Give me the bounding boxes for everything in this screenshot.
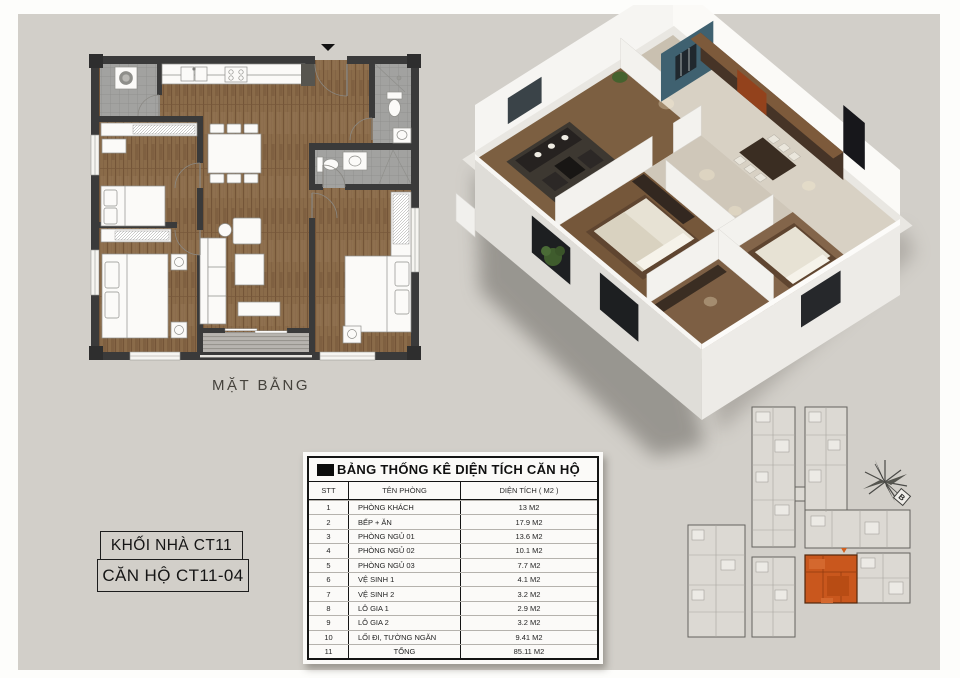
row-stt: 5 [309, 559, 349, 572]
tv-cabinet [238, 302, 280, 316]
table-row: 3 PHÒNG NGỦ 01 13.6 M2 [309, 529, 597, 543]
table-row: 7 VỆ SINH 2 3.2 M2 [309, 586, 597, 600]
row-stt: 2 [309, 515, 349, 528]
dining-table [208, 134, 261, 173]
table-row: 11 TỔNG 85.11 M2 [309, 644, 597, 658]
table-row: 4 PHÒNG NGỦ 02 10.1 M2 [309, 543, 597, 557]
row-stt: 1 [309, 501, 349, 514]
stove-icon [225, 67, 247, 82]
table-body: 1 PHÒNG KHÁCH 13 M2 2 BẾP + ĂN 17.9 M2 3… [309, 500, 597, 658]
row-area-value: 10.1 M2 [461, 544, 597, 557]
coffee-table [235, 254, 264, 285]
row-room-name: TỔNG [349, 645, 461, 658]
row-area-value: 13 M2 [461, 501, 597, 514]
toilet-icon [387, 92, 402, 99]
row-area-value: 85.11 M2 [461, 645, 597, 658]
sink-icon [181, 67, 194, 81]
row-stt: 3 [309, 530, 349, 543]
row-stt: 4 [309, 544, 349, 557]
highlighted-unit [805, 548, 857, 603]
table-title-row: BẢNG THỐNG KÊ DIỆN TÍCH CĂN HỘ [309, 458, 597, 482]
floor-plan-caption: MẶT BẰNG [181, 377, 341, 397]
row-stt: 11 [309, 645, 349, 658]
row-area-value: 7.7 M2 [461, 559, 597, 572]
row-room-name: PHÒNG NGỦ 02 [349, 544, 461, 557]
row-area-value: 17.9 M2 [461, 515, 597, 528]
table-header-row: STT TÊN PHÒNG DIỆN TÍCH ( M2 ) [309, 482, 597, 500]
table-row: 10 LỐI ĐI, TƯỜNG NGĂN 9.41 M2 [309, 630, 597, 644]
entry-cabinet [301, 64, 315, 86]
row-area-value: 3.2 M2 [461, 616, 597, 629]
north-arrow-icon [321, 44, 335, 51]
table-row: 2 BẾP + ĂN 17.9 M2 [309, 514, 597, 528]
table-title: BẢNG THỐNG KÊ DIỆN TÍCH CĂN HỘ [334, 462, 597, 477]
unit-label: CĂN HỘ CT11-04 [97, 559, 249, 592]
site-plan: B [665, 390, 960, 678]
table-row: 8 LÔ GIA 1 2.9 M2 [309, 601, 597, 615]
col-header-stt: STT [309, 482, 349, 499]
table-row: 9 LÔ GIA 2 3.2 M2 [309, 615, 597, 629]
floor-plan-2d [75, 40, 435, 370]
row-room-name: LỐI ĐI, TƯỜNG NGĂN [349, 631, 461, 644]
row-room-name: PHÒNG NGỦ 03 [349, 559, 461, 572]
row-area-value: 13.6 M2 [461, 530, 597, 543]
block-label: KHỐI NHÀ CT11 [100, 531, 243, 560]
toilet-icon [317, 157, 323, 172]
row-stt: 10 [309, 631, 349, 644]
row-stt: 6 [309, 573, 349, 586]
compass-icon: B [863, 460, 910, 505]
col-header-area: DIỆN TÍCH ( M2 ) [461, 482, 597, 499]
table-row: 1 PHÒNG KHÁCH 13 M2 [309, 500, 597, 514]
col-header-name: TÊN PHÒNG [349, 482, 461, 499]
row-room-name: VỆ SINH 2 [349, 587, 461, 600]
armchair [233, 218, 261, 244]
row-room-name: LÔ GIA 2 [349, 616, 461, 629]
legend-square-icon [317, 464, 334, 476]
row-room-name: PHÒNG NGỦ 01 [349, 530, 461, 543]
floor-lamp [219, 224, 232, 237]
table-row: 5 PHÒNG NGỦ 03 7.7 M2 [309, 558, 597, 572]
row-room-name: PHÒNG KHÁCH [349, 501, 461, 514]
row-area-value: 2.9 M2 [461, 602, 597, 615]
row-room-name: BẾP + ĂN [349, 515, 461, 528]
row-area-value: 9.41 M2 [461, 631, 597, 644]
area-statistics-table: BẢNG THỐNG KÊ DIỆN TÍCH CĂN HỘ STT TÊN P… [303, 452, 603, 664]
row-room-name: LÔ GIA 1 [349, 602, 461, 615]
row-stt: 8 [309, 602, 349, 615]
sofa [200, 238, 208, 324]
row-room-name: VỆ SINH 1 [349, 573, 461, 586]
row-area-value: 4.1 M2 [461, 573, 597, 586]
table-row: 6 VỆ SINH 1 4.1 M2 [309, 572, 597, 586]
row-area-value: 3.2 M2 [461, 587, 597, 600]
row-stt: 7 [309, 587, 349, 600]
row-stt: 9 [309, 616, 349, 629]
balcony-railing [200, 355, 312, 357]
